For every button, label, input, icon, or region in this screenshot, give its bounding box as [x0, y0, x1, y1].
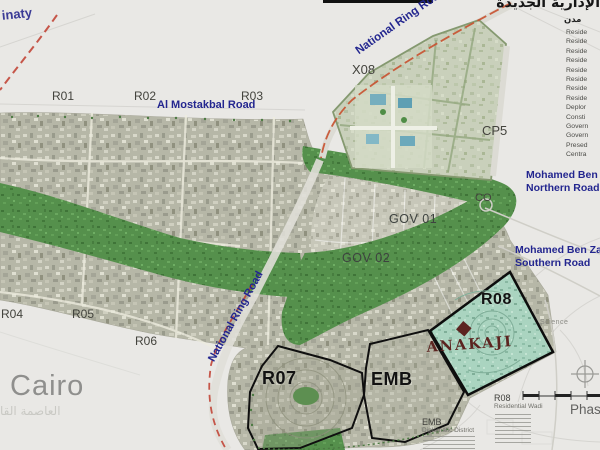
label-r02: R02 — [134, 89, 156, 103]
label-cairo: Cairo — [10, 370, 84, 403]
label-mbz-southern-road: Mohamed Ben Zayed Southern Road — [515, 244, 600, 269]
mbz-south-line1: Mohamed Ben Zayed — [515, 244, 600, 257]
mbz-north-line2: Northern Road — [526, 182, 600, 195]
label-gov01: GOV 01 — [389, 212, 437, 226]
label-r04: R04 — [1, 307, 23, 321]
label-gov02: GOV 02 — [342, 251, 390, 265]
legend-item: Reside — [566, 56, 588, 65]
label-r06: R06 — [135, 334, 157, 348]
map-canvas — [0, 0, 600, 450]
label-x08: X08 — [352, 62, 375, 77]
legend-item: Reside — [566, 47, 588, 56]
legend-header-arabic: مدن — [564, 15, 581, 25]
mbz-north-line1: Mohamed Ben Zayed — [526, 169, 600, 182]
label-phase: Phase — [570, 402, 600, 417]
r08-note-title: R08 — [494, 393, 543, 403]
legend-item: Reside — [566, 94, 588, 103]
label-emb: EMB — [371, 369, 413, 390]
legend-item: Reside — [566, 84, 588, 93]
emb-note-title: EMB — [422, 417, 474, 427]
label-science: Science — [540, 319, 568, 326]
masterplan-map: الإدارية الجديدة مدن Reside Reside Resid… — [0, 0, 600, 450]
label-r05: R05 — [72, 307, 94, 321]
legend-list: Reside Reside Reside Reside Reside Resid… — [566, 28, 588, 160]
anakaji-logo: ANAKAJI — [425, 320, 514, 356]
map-title-arabic: الإدارية الجديدة — [486, 0, 600, 15]
label-r03: R03 — [241, 89, 263, 103]
mbz-south-line2: Southern Road — [515, 257, 600, 270]
legend-item: Reside — [566, 28, 588, 37]
label-madinaty: inaty — [1, 5, 33, 23]
anakaji-diamond-icon — [456, 321, 472, 337]
emb-note-sub: Diplomatic District — [422, 427, 474, 434]
label-cp5: CP5 — [482, 123, 507, 138]
r08-note-block: R08 Residential Wadi — [494, 393, 543, 410]
legend-item: Deplor — [566, 103, 588, 112]
legend-item: Reside — [566, 66, 588, 75]
emb-note-rows — [423, 436, 475, 449]
label-r08: R08 — [481, 291, 512, 309]
r08-note-rows — [495, 414, 531, 444]
r08-note-sub: Residential Wadi — [494, 403, 543, 410]
legend-item: Presed — [566, 141, 588, 150]
label-mbz-northern-road: Mohamed Ben Zayed Northern Road — [526, 169, 600, 194]
legend-item: Govern — [566, 122, 588, 131]
legend-item: Consti — [566, 113, 588, 122]
legend-item: Centra — [566, 150, 588, 159]
emb-note-block: EMB Diplomatic District — [422, 417, 474, 434]
label-cairo-arabic: العاصمة القا — [0, 404, 61, 418]
label-co: CO — [475, 192, 492, 204]
legend-item: Govern — [566, 131, 588, 140]
label-r01: R01 — [52, 89, 74, 103]
legend-item: Reside — [566, 75, 588, 84]
legend-item: Reside — [566, 37, 588, 46]
label-r07: R07 — [262, 368, 297, 389]
